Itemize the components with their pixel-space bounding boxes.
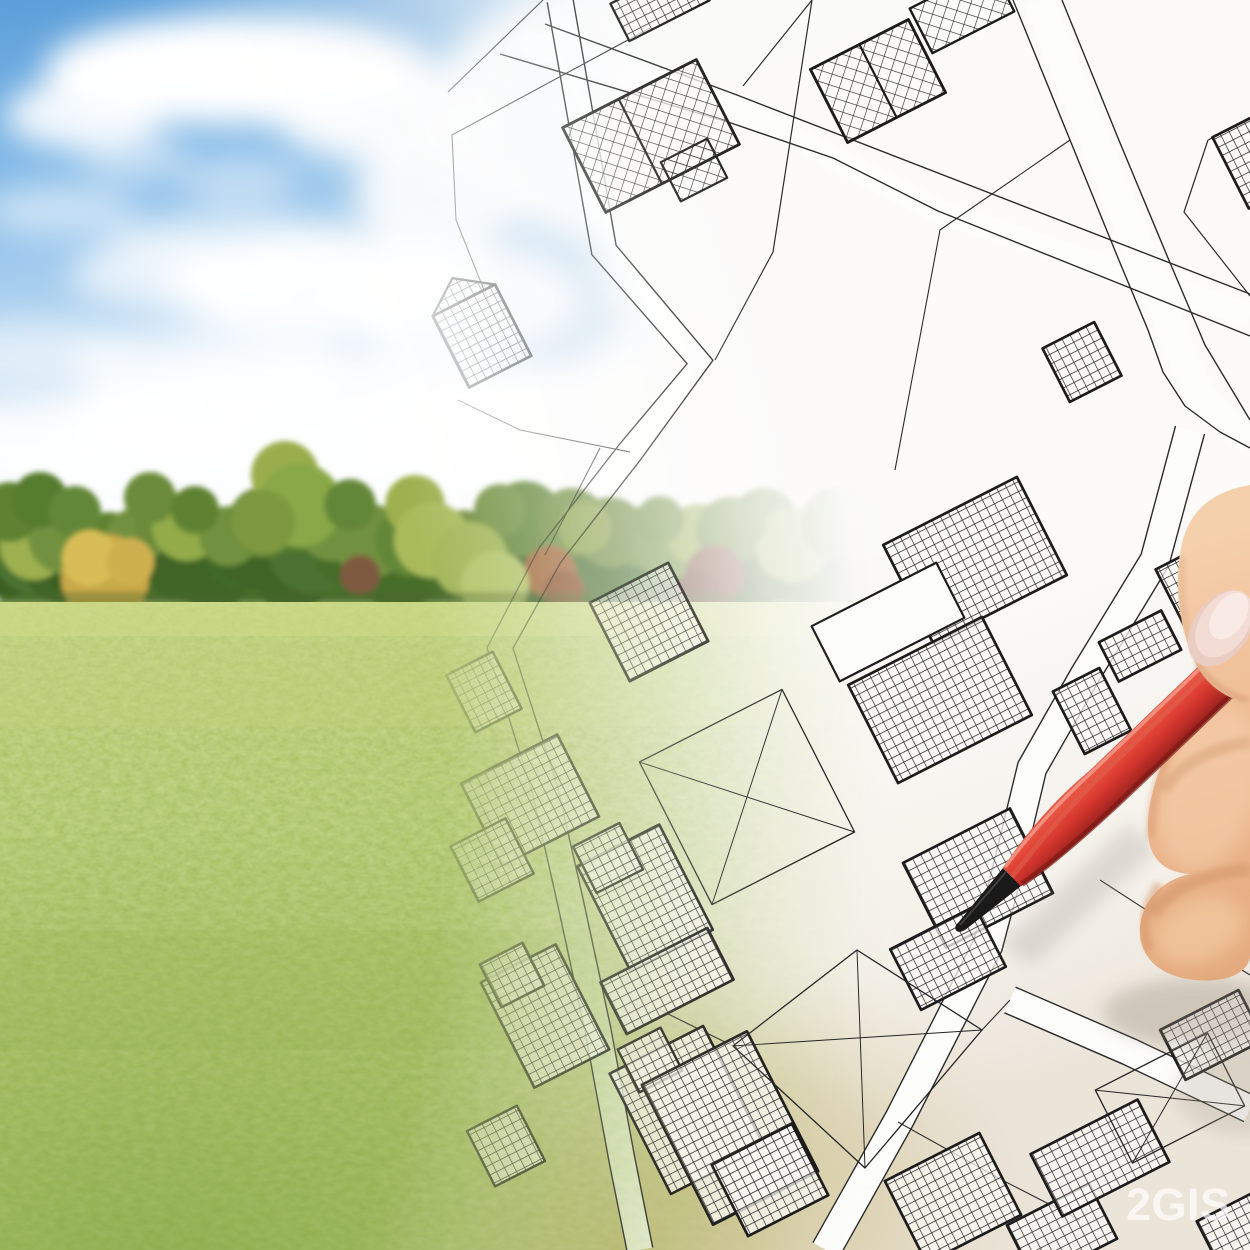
svg-text:2GIS: 2GIS (1126, 1179, 1231, 1230)
